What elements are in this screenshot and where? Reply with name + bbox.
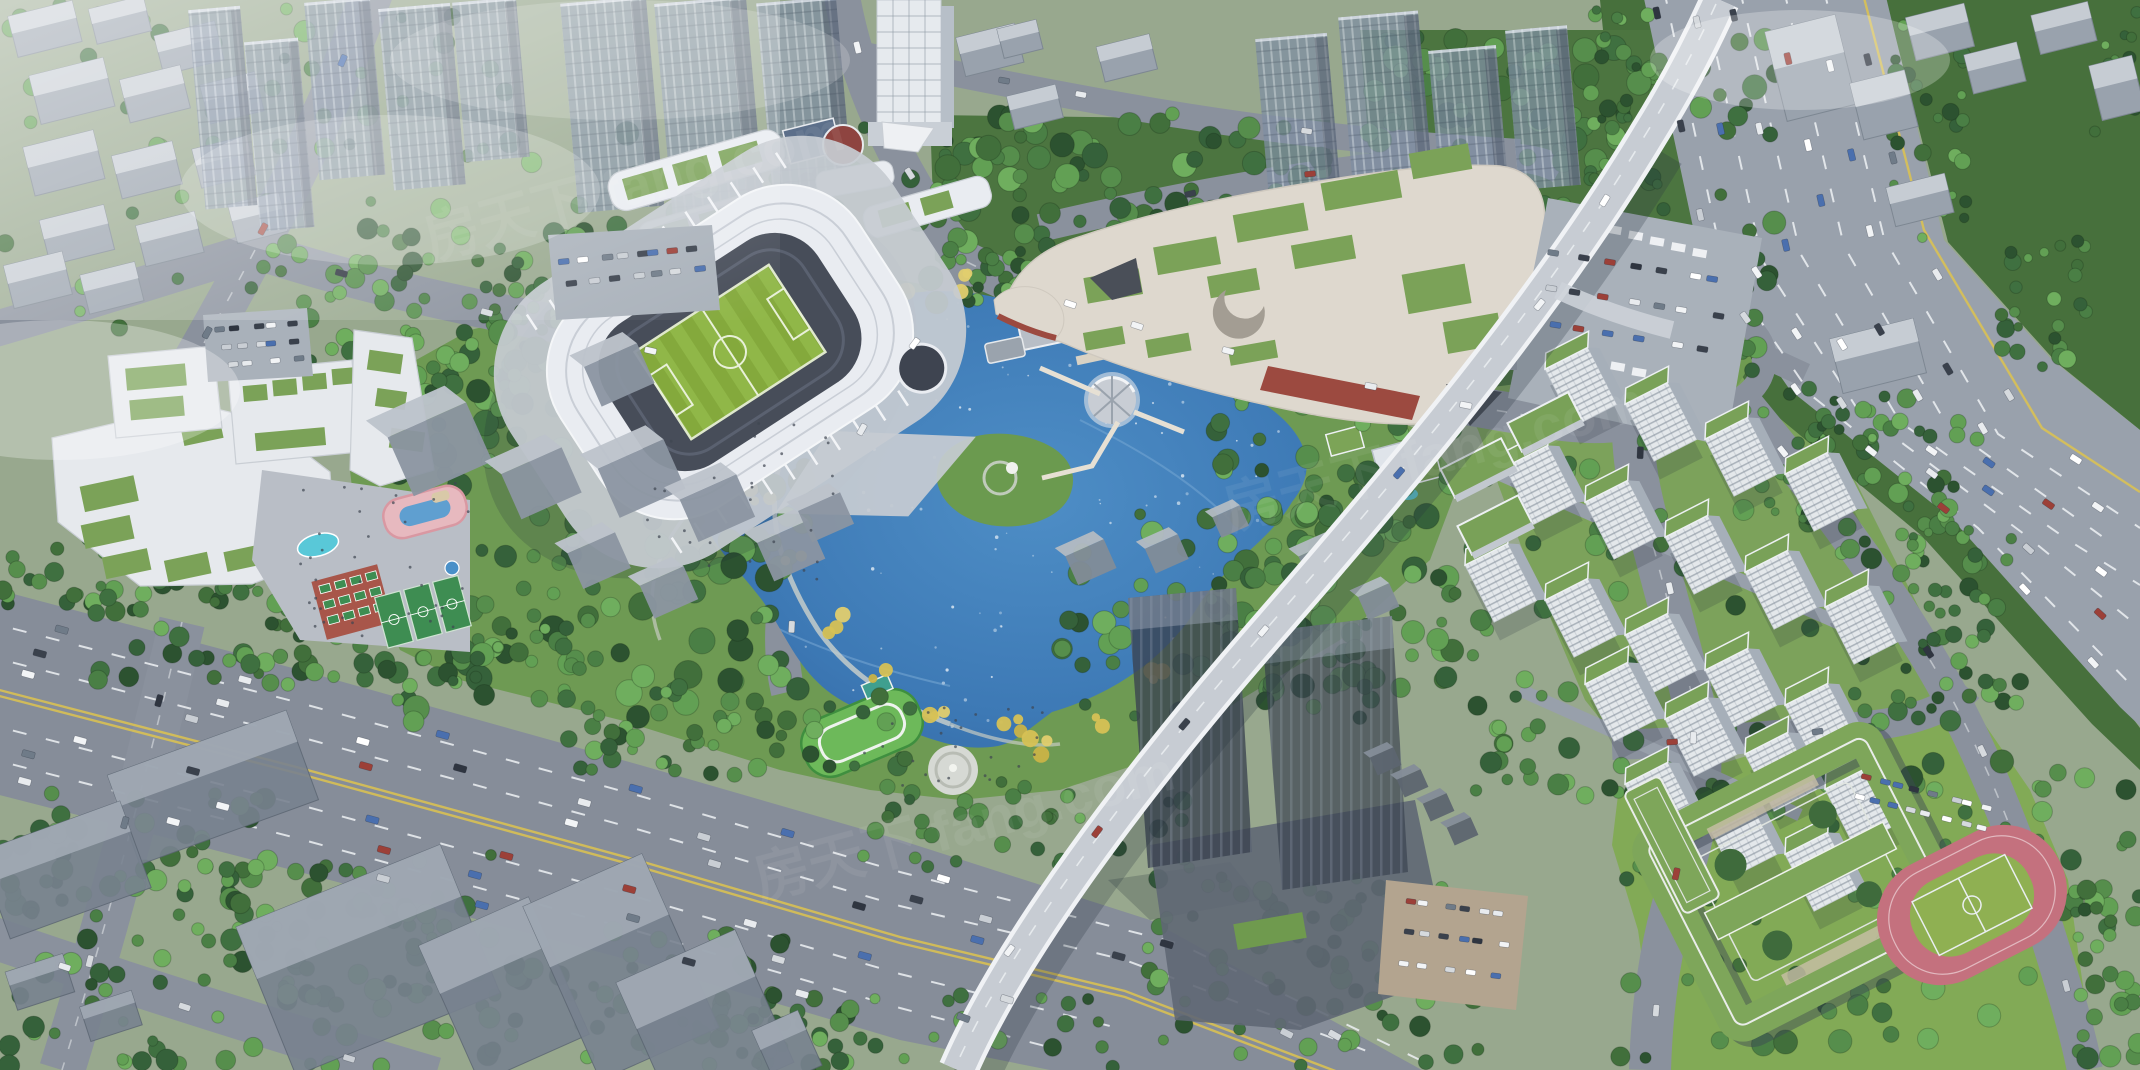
tree bbox=[1109, 625, 1133, 649]
tree bbox=[44, 786, 59, 801]
car bbox=[289, 339, 299, 345]
yellow-tree bbox=[922, 707, 938, 723]
tree bbox=[1015, 246, 1025, 256]
pedestrian bbox=[831, 475, 834, 478]
tree bbox=[1621, 973, 1641, 993]
pedestrian bbox=[313, 607, 316, 610]
pedestrian bbox=[901, 784, 904, 787]
pedestrian bbox=[351, 621, 354, 624]
tree bbox=[77, 929, 97, 949]
tree bbox=[1436, 667, 1457, 688]
tree bbox=[929, 1032, 939, 1042]
tree bbox=[1294, 1059, 1307, 1070]
tree bbox=[219, 862, 235, 878]
tree bbox=[1602, 780, 1619, 797]
tree bbox=[802, 746, 819, 763]
tree bbox=[880, 779, 895, 794]
tree bbox=[1859, 536, 1871, 548]
pedestrian bbox=[1041, 711, 1044, 714]
pedestrian bbox=[810, 529, 813, 532]
tree bbox=[1978, 1004, 2001, 1027]
tree bbox=[1848, 687, 1861, 700]
tree bbox=[593, 710, 605, 722]
tree bbox=[586, 764, 598, 776]
tree bbox=[1620, 94, 1633, 107]
pedestrian bbox=[432, 498, 435, 501]
tree bbox=[1690, 97, 1712, 119]
tree bbox=[1988, 599, 2006, 617]
tree bbox=[2005, 246, 2017, 258]
tree bbox=[1472, 1043, 1484, 1055]
tree bbox=[1595, 50, 1609, 64]
tree bbox=[751, 612, 763, 624]
car bbox=[221, 344, 231, 350]
tree bbox=[1892, 413, 1909, 430]
tree bbox=[1758, 407, 1769, 418]
tree bbox=[558, 690, 576, 708]
tree bbox=[1745, 363, 1760, 378]
tree bbox=[339, 863, 353, 877]
tree bbox=[509, 643, 528, 662]
tree bbox=[119, 667, 139, 687]
tree bbox=[601, 738, 618, 755]
tree bbox=[824, 701, 836, 713]
pedestrian bbox=[321, 549, 324, 552]
tree bbox=[154, 621, 169, 636]
tree bbox=[132, 935, 144, 947]
sparkle bbox=[1161, 432, 1163, 434]
tree bbox=[1410, 1016, 1431, 1037]
tree bbox=[718, 668, 743, 693]
tree bbox=[1079, 699, 1091, 711]
tree bbox=[189, 650, 205, 666]
pedestrian bbox=[954, 745, 957, 748]
tree bbox=[1573, 38, 1598, 63]
sparkle bbox=[871, 567, 874, 570]
sparkle bbox=[991, 676, 993, 678]
tree bbox=[2090, 902, 2103, 915]
tree bbox=[2099, 1046, 2121, 1068]
tree bbox=[470, 671, 482, 683]
tree bbox=[1044, 1038, 1062, 1056]
pedestrian bbox=[314, 625, 317, 628]
tree bbox=[210, 597, 220, 607]
tree bbox=[476, 544, 488, 556]
tree bbox=[2074, 298, 2087, 311]
tree bbox=[1382, 1014, 1399, 1031]
tree bbox=[1801, 381, 1816, 396]
tree bbox=[1609, 581, 1629, 601]
sparkle bbox=[880, 572, 882, 574]
tree bbox=[555, 638, 572, 655]
pedestrian bbox=[947, 777, 950, 780]
pedestrian bbox=[924, 773, 927, 776]
tree bbox=[1187, 151, 1203, 167]
tree bbox=[903, 702, 917, 716]
tree bbox=[1592, 6, 1601, 15]
pedestrian bbox=[1031, 706, 1034, 709]
tree bbox=[689, 628, 715, 654]
pedestrian bbox=[990, 756, 993, 759]
tree bbox=[273, 649, 288, 664]
tree bbox=[1922, 752, 1944, 774]
car bbox=[1491, 973, 1502, 979]
tree bbox=[1959, 213, 1969, 223]
tree bbox=[1883, 1026, 1899, 1042]
tree bbox=[1979, 593, 1991, 605]
sparkle bbox=[1154, 495, 1157, 498]
tree bbox=[572, 662, 586, 676]
tree bbox=[1957, 91, 1966, 100]
tree bbox=[450, 353, 469, 372]
tree bbox=[1437, 617, 1447, 627]
pedestrian bbox=[881, 745, 884, 748]
tree bbox=[1492, 720, 1506, 734]
pedestrian bbox=[319, 607, 322, 610]
pedestrian bbox=[670, 440, 673, 443]
tree bbox=[1093, 1017, 1104, 1028]
tree bbox=[1898, 472, 1912, 486]
tree bbox=[1074, 215, 1087, 228]
car bbox=[1398, 960, 1409, 966]
tree bbox=[439, 1023, 454, 1038]
tree bbox=[758, 655, 779, 676]
tree bbox=[1968, 548, 1983, 563]
tree bbox=[871, 688, 888, 705]
sparkle bbox=[1032, 555, 1034, 557]
sparkle bbox=[1236, 440, 1238, 442]
tree bbox=[2086, 975, 2105, 994]
sparkle bbox=[979, 612, 981, 614]
sparkle bbox=[986, 719, 989, 722]
pedestrian bbox=[360, 487, 363, 490]
sparkle bbox=[995, 535, 999, 539]
pedestrian bbox=[359, 580, 362, 583]
tree bbox=[2116, 780, 2136, 800]
tree bbox=[133, 601, 149, 617]
tree bbox=[986, 252, 999, 265]
pedestrian bbox=[343, 486, 346, 489]
tree bbox=[100, 589, 117, 606]
car bbox=[256, 341, 266, 347]
yellow-tree bbox=[1041, 735, 1052, 746]
sparkle bbox=[1177, 501, 1181, 505]
tree bbox=[1682, 974, 1694, 986]
pedestrian bbox=[429, 620, 432, 623]
tree bbox=[1579, 459, 1599, 479]
sparkle bbox=[1007, 374, 1009, 376]
car bbox=[788, 621, 795, 633]
car bbox=[270, 358, 280, 364]
tree bbox=[540, 624, 550, 634]
car bbox=[1404, 929, 1415, 935]
tree bbox=[2024, 254, 2032, 262]
sparkle bbox=[1186, 492, 1189, 495]
tree bbox=[392, 694, 404, 706]
tree bbox=[1110, 197, 1131, 218]
pedestrian bbox=[308, 601, 311, 604]
tree bbox=[1792, 437, 1805, 450]
tree bbox=[129, 639, 145, 655]
tree bbox=[1928, 583, 1942, 597]
car bbox=[1438, 933, 1449, 939]
tree bbox=[1040, 203, 1061, 224]
tree bbox=[1632, 63, 1641, 72]
tree bbox=[1715, 189, 1727, 201]
pedestrian bbox=[407, 612, 410, 615]
tree bbox=[287, 863, 304, 880]
tree bbox=[2126, 907, 2140, 927]
white-tower bbox=[868, 0, 954, 146]
tree bbox=[661, 687, 672, 698]
pedestrian bbox=[772, 540, 775, 543]
sparkle bbox=[1051, 571, 1053, 573]
tree bbox=[904, 794, 914, 804]
pedestrian bbox=[646, 519, 649, 522]
tree bbox=[877, 713, 895, 731]
tree bbox=[727, 620, 749, 642]
tree bbox=[99, 983, 113, 997]
tree bbox=[953, 988, 968, 1003]
tree bbox=[828, 1039, 843, 1054]
sparkle bbox=[805, 646, 807, 648]
tree bbox=[547, 587, 560, 600]
tree bbox=[812, 1031, 827, 1046]
car bbox=[1812, 728, 1824, 735]
tree bbox=[1530, 719, 1545, 734]
tree bbox=[687, 724, 703, 740]
tree bbox=[2058, 350, 2076, 368]
tree bbox=[1861, 548, 1882, 569]
sparkle bbox=[1212, 573, 1214, 575]
tree bbox=[1013, 169, 1027, 183]
sparkle bbox=[1006, 532, 1008, 534]
tree bbox=[1964, 525, 1974, 535]
tree bbox=[23, 1016, 45, 1038]
pedestrian bbox=[367, 535, 370, 538]
tree bbox=[2075, 768, 2095, 788]
sparkle bbox=[1181, 401, 1184, 404]
tree bbox=[830, 1013, 849, 1032]
tree bbox=[2019, 967, 2038, 986]
pedestrian bbox=[467, 510, 470, 513]
tree bbox=[1012, 207, 1029, 224]
pedestrian bbox=[713, 477, 716, 480]
tree bbox=[178, 880, 191, 893]
tree bbox=[1914, 144, 1931, 161]
sparkle bbox=[1250, 444, 1253, 447]
pedestrian bbox=[749, 498, 752, 501]
tree bbox=[2089, 126, 2100, 137]
tree bbox=[1520, 759, 1536, 775]
pedestrian bbox=[434, 604, 437, 607]
tree bbox=[1496, 736, 1512, 752]
car bbox=[1667, 739, 1678, 745]
tree bbox=[328, 671, 340, 683]
tree bbox=[1920, 93, 1932, 105]
tree bbox=[1924, 601, 1935, 612]
tree bbox=[1868, 434, 1877, 443]
tree bbox=[1166, 107, 1180, 121]
tree bbox=[354, 653, 374, 673]
tree bbox=[1927, 633, 1941, 647]
car bbox=[287, 321, 297, 327]
tree bbox=[2001, 554, 2013, 566]
tree bbox=[1994, 341, 2010, 357]
tree bbox=[581, 701, 595, 715]
tree bbox=[899, 1053, 909, 1063]
tree bbox=[202, 934, 216, 948]
pedestrian bbox=[816, 561, 819, 564]
tree bbox=[1150, 969, 1169, 988]
pedestrian bbox=[960, 726, 963, 729]
car bbox=[266, 341, 276, 347]
tree bbox=[506, 628, 518, 640]
tree bbox=[49, 1028, 60, 1039]
car bbox=[1479, 908, 1490, 915]
pedestrian bbox=[683, 529, 686, 532]
tree bbox=[230, 893, 250, 913]
tree bbox=[2052, 320, 2064, 332]
tree bbox=[1918, 1028, 1939, 1049]
tree bbox=[281, 678, 295, 692]
tree bbox=[757, 721, 775, 739]
tree bbox=[241, 654, 260, 673]
pedestrian bbox=[461, 587, 464, 590]
tree bbox=[1771, 508, 1779, 516]
car bbox=[1637, 447, 1644, 459]
pedestrian bbox=[943, 707, 946, 710]
tree bbox=[2061, 849, 2082, 870]
pedestrian bbox=[974, 713, 977, 716]
car bbox=[1459, 936, 1470, 942]
car bbox=[229, 325, 239, 331]
tree bbox=[465, 338, 478, 351]
tree bbox=[1879, 391, 1890, 402]
pedestrian bbox=[827, 442, 830, 445]
tree bbox=[474, 685, 495, 706]
pedestrian bbox=[937, 780, 940, 783]
tree bbox=[2120, 831, 2137, 848]
tree bbox=[976, 135, 1001, 160]
tree bbox=[2078, 952, 2093, 967]
tree bbox=[2006, 533, 2017, 544]
tree bbox=[868, 1038, 883, 1053]
tree bbox=[1548, 774, 1569, 795]
tree bbox=[1510, 691, 1522, 703]
tree bbox=[378, 660, 396, 678]
tree bbox=[2078, 903, 2091, 916]
tree bbox=[1206, 133, 1222, 149]
tree bbox=[1612, 12, 1623, 23]
tree bbox=[1932, 692, 1944, 704]
pedestrian bbox=[749, 560, 752, 563]
sparkle bbox=[1109, 522, 1111, 524]
tree bbox=[2086, 1009, 2102, 1025]
tree bbox=[1211, 413, 1230, 432]
car bbox=[254, 323, 264, 329]
pedestrian bbox=[751, 486, 754, 489]
pedestrian bbox=[420, 584, 423, 587]
sparkle bbox=[934, 646, 936, 648]
tree bbox=[1054, 640, 1071, 657]
tree bbox=[1728, 106, 1748, 126]
pedestrian bbox=[780, 452, 783, 455]
tree bbox=[2009, 695, 2024, 710]
tree bbox=[212, 1011, 224, 1023]
tree bbox=[1821, 415, 1835, 429]
tree bbox=[2032, 801, 2052, 821]
tree bbox=[265, 617, 278, 630]
tree bbox=[973, 282, 984, 293]
tree bbox=[2049, 332, 2061, 344]
tree bbox=[1611, 1047, 1630, 1066]
tree bbox=[224, 954, 238, 968]
tree bbox=[90, 910, 103, 923]
pedestrian bbox=[793, 424, 796, 427]
tree bbox=[1101, 167, 1122, 188]
tree bbox=[776, 730, 787, 741]
tree bbox=[1118, 113, 1141, 136]
tree bbox=[1911, 711, 1925, 725]
pedestrian bbox=[709, 541, 712, 544]
tree bbox=[849, 761, 859, 771]
tree bbox=[1299, 1038, 1317, 1056]
tree bbox=[1027, 146, 1050, 169]
tree bbox=[823, 760, 836, 773]
scene-svg: 房天下 fang.com 房天下 fang.com 房天下 fang.com bbox=[0, 0, 2140, 1070]
yellow-tree bbox=[997, 717, 1012, 732]
tree bbox=[935, 155, 961, 181]
tree bbox=[403, 711, 424, 732]
sparkle bbox=[1199, 566, 1200, 567]
pedestrian bbox=[757, 422, 760, 425]
pedestrian bbox=[815, 578, 818, 581]
pedestrian bbox=[409, 566, 412, 569]
car bbox=[1472, 938, 1483, 944]
round-pool bbox=[445, 561, 459, 575]
pedestrian bbox=[404, 521, 407, 524]
tree bbox=[248, 859, 264, 875]
tree bbox=[1013, 188, 1026, 201]
tree bbox=[1891, 690, 1905, 704]
tree bbox=[0, 1035, 20, 1056]
tree bbox=[1145, 187, 1163, 205]
tree bbox=[943, 995, 955, 1007]
tree bbox=[85, 978, 97, 990]
car bbox=[1465, 969, 1476, 975]
tree bbox=[1468, 696, 1487, 715]
tree bbox=[1905, 697, 1916, 708]
tree bbox=[154, 950, 171, 967]
tree bbox=[766, 988, 782, 1004]
tree bbox=[1015, 131, 1027, 143]
car bbox=[1419, 931, 1430, 937]
tree bbox=[1470, 785, 1482, 797]
tree bbox=[1640, 1052, 1651, 1063]
tree bbox=[748, 758, 767, 777]
sparkle bbox=[946, 668, 949, 671]
tree bbox=[831, 1052, 849, 1070]
tree bbox=[470, 651, 485, 666]
tree bbox=[1954, 153, 1970, 169]
tree bbox=[2037, 362, 2047, 372]
sparkle bbox=[1099, 499, 1101, 501]
tree bbox=[2012, 673, 2029, 690]
tree bbox=[1061, 996, 1076, 1011]
pedestrian bbox=[654, 487, 657, 490]
pedestrian bbox=[1007, 708, 1010, 711]
